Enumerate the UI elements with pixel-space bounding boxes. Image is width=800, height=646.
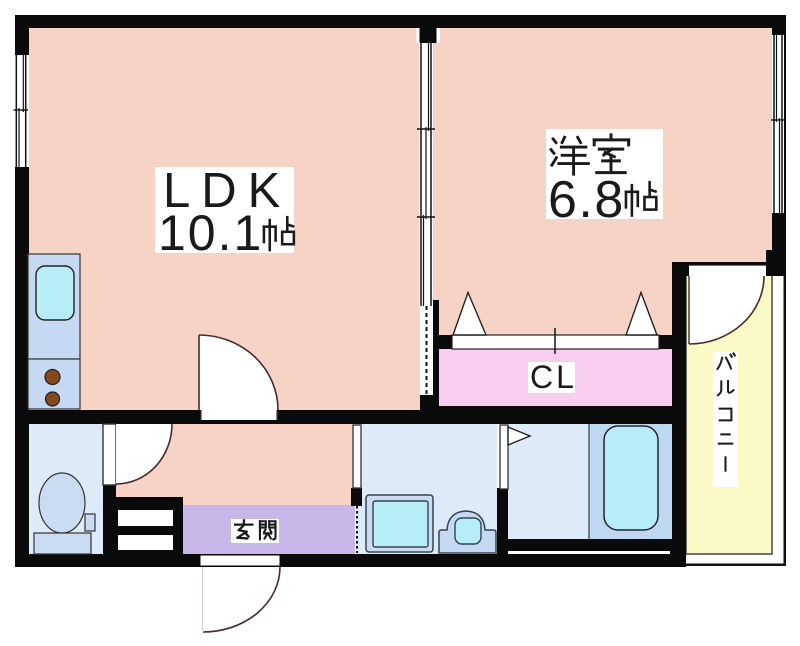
svg-text:CL: CL: [530, 359, 577, 395]
svg-text:10.1: 10.1: [158, 205, 263, 261]
svg-text:6.8: 6.8: [548, 171, 625, 229]
